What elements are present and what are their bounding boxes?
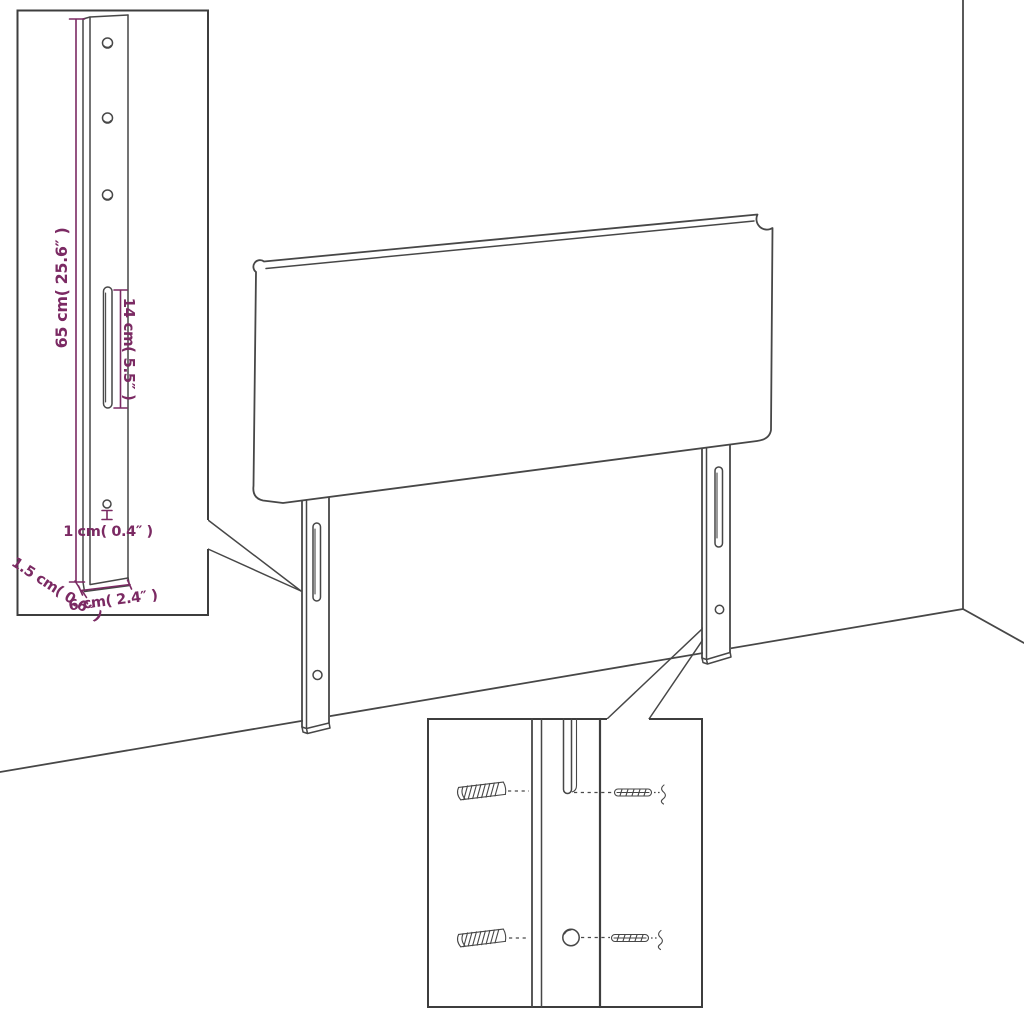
- left-leg-slot: [313, 523, 321, 601]
- right-leg-hole: [715, 605, 723, 613]
- dimension-height-label: 65 cm( 25.6″ ): [52, 228, 71, 349]
- right-leg-slot: [715, 467, 723, 547]
- right-mounting-leg: [702, 444, 731, 664]
- headboard-panel: [253, 215, 772, 504]
- strip-hole: [563, 929, 579, 945]
- dimension-slot-label: 14 cm( 5.5″ ): [120, 298, 138, 401]
- headboard-assembly-diagram: 65 cm( 25.6″ ) 14 cm( 5.5″ ) 1 cm( 0.4″ …: [0, 0, 1024, 1024]
- bracket-small-hole: [103, 500, 111, 508]
- diagram-page: 65 cm( 25.6″ ) 14 cm( 5.5″ ) 1 cm( 0.4″ …: [0, 0, 1024, 1024]
- left-mounting-leg: [302, 497, 330, 734]
- floor-line-right: [963, 609, 1024, 643]
- screw-detail-inset: [428, 719, 702, 1007]
- panel-outline: [253, 215, 772, 504]
- callout-lines-bracket: [208, 520, 301, 591]
- dimension-hole-label: 1 cm( 0.4″ ): [63, 524, 153, 540]
- screw-inset-border: [428, 719, 702, 1007]
- left-leg-hole: [313, 671, 322, 680]
- bracket-detail-inset: 65 cm( 25.6″ ) 14 cm( 5.5″ ) 1 cm( 0.4″ …: [8, 11, 208, 625]
- bracket-slot: [104, 287, 113, 408]
